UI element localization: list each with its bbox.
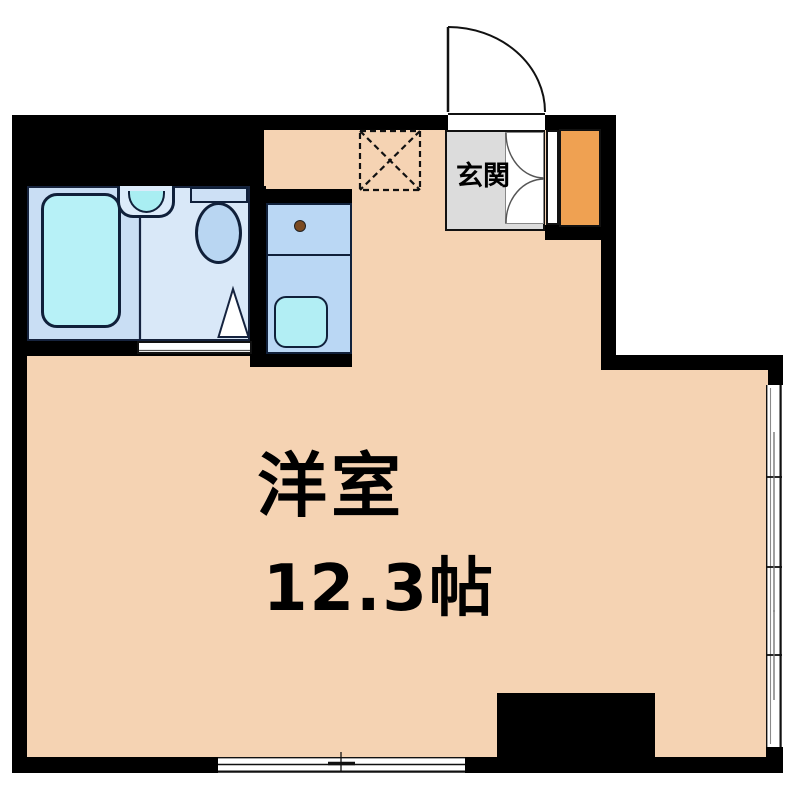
entrance-right-wall	[601, 115, 616, 370]
left-wall	[12, 115, 27, 773]
mid-right-wall	[601, 355, 768, 370]
entrance-door-swing-arc	[448, 27, 545, 112]
main-room-label-block: 洋室 12.3帖	[257, 448, 495, 624]
top-right-corner-block	[768, 355, 783, 385]
kitchen-counter-back	[266, 189, 352, 203]
shoe-cabinet	[559, 129, 601, 227]
kitchen-sink	[274, 296, 328, 348]
wall-below-entrance	[545, 225, 616, 240]
toilet-bowl	[195, 202, 242, 264]
main-room-size-label: 12.3帖	[257, 554, 495, 624]
wall-below-kitchen	[250, 353, 352, 367]
floor-plan: 玄関 洋室 12.3帖	[0, 0, 800, 800]
toilet-tank	[190, 187, 248, 203]
right-window	[766, 385, 782, 747]
bottom-window	[218, 757, 465, 773]
main-room-label: 洋室	[257, 448, 495, 524]
top-left-wall-block	[12, 115, 264, 186]
entrance-label: 玄関	[433, 162, 533, 192]
top-wall-left-of-door	[264, 115, 448, 130]
bathroom-kitchen-wall	[250, 186, 266, 367]
bathroom-threshold	[137, 341, 252, 354]
bottom-right-corner-block	[766, 747, 783, 773]
kitchen-counter-divider	[267, 254, 351, 256]
entrance-door-opening	[448, 113, 545, 130]
faucet	[294, 220, 306, 232]
genkan-door-strip	[546, 130, 559, 225]
pillar	[497, 693, 655, 758]
bathtub	[41, 193, 121, 328]
